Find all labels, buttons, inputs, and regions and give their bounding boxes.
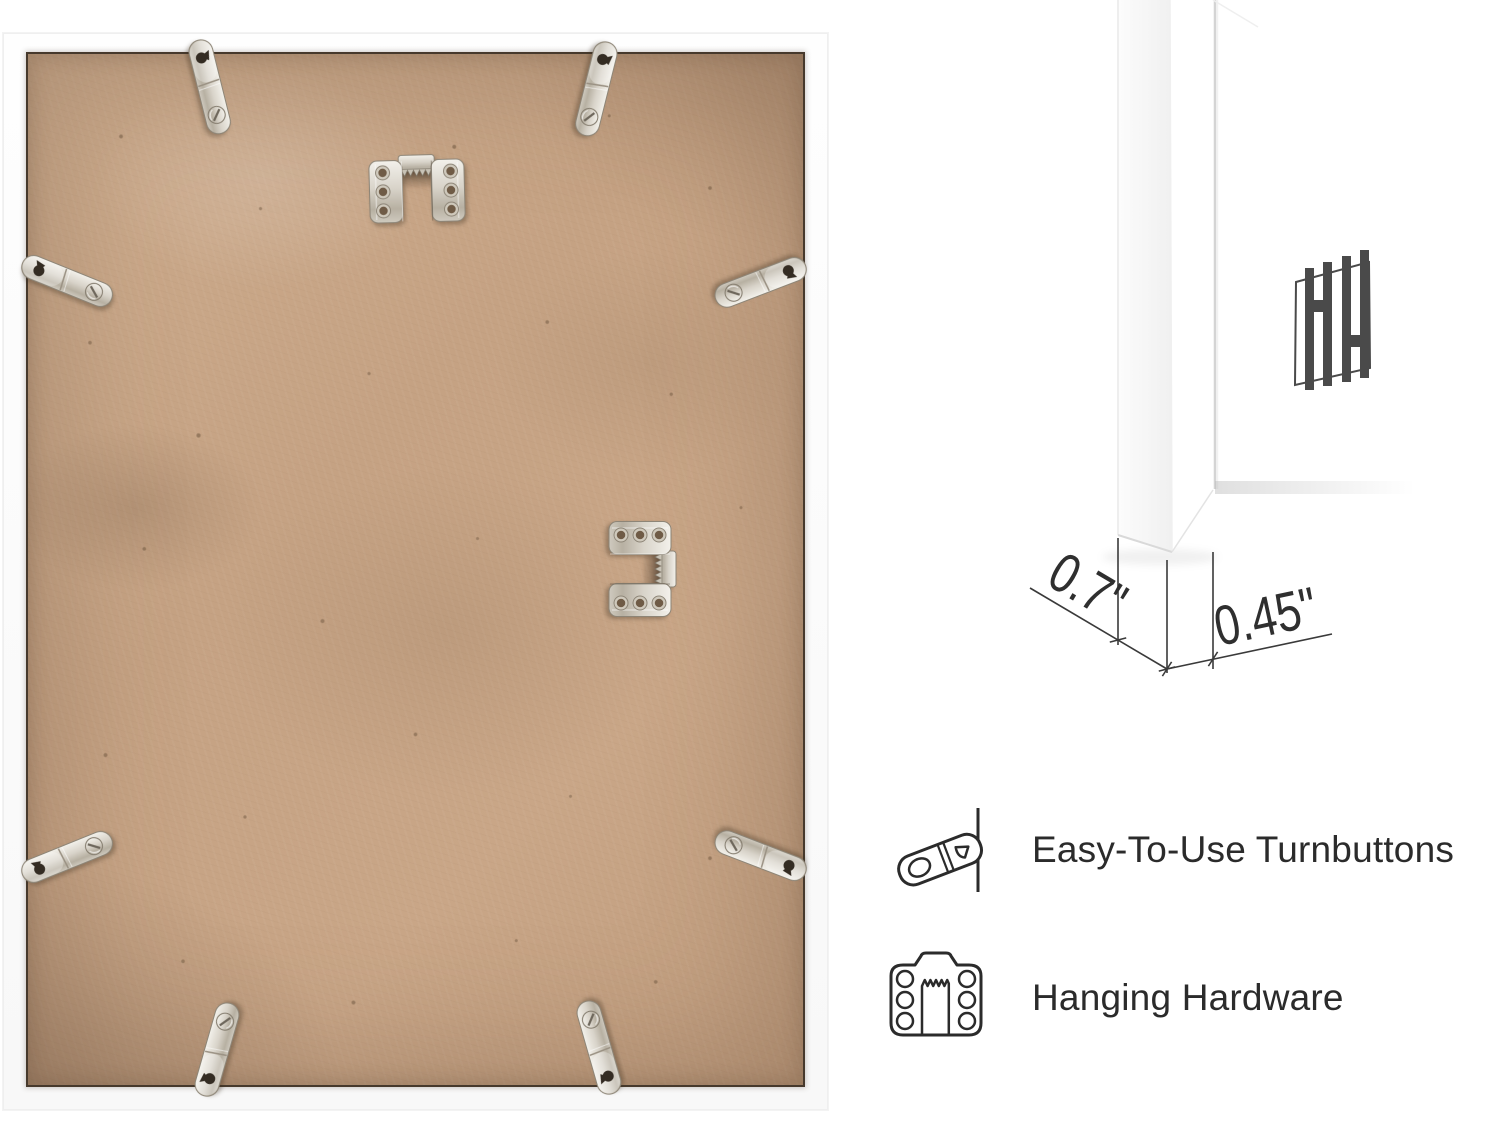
mat-bottom-shadow: [1215, 481, 1500, 494]
corner-shadow: [1102, 549, 1218, 565]
frame-side-face: [1118, 0, 1172, 552]
hardware-layer: [3, 33, 828, 1110]
turnbutton-bottom-left: [188, 997, 246, 1102]
turnbutton-top-right: [569, 36, 624, 141]
hanging-hardware-icon: [888, 950, 984, 1038]
top-rail-hint: [1213, 0, 1258, 27]
hh-monogram-logo: [1295, 250, 1370, 390]
turnbutton-bottom-right: [570, 995, 628, 1100]
turnbutton-top-left: [182, 34, 237, 139]
sawtooth-hanger-middle: [604, 521, 678, 617]
turnbutton-right-upper: [708, 249, 813, 315]
feature-label: Hanging Hardware: [1032, 975, 1344, 1021]
product-image: 0.7" 0.45" Easy-To-Use Turnbuttons Hangi…: [0, 0, 1500, 1135]
turnbutton-right-lower: [708, 823, 813, 889]
frame-back-photo: [3, 33, 828, 1110]
turnbutton-icon: [884, 804, 994, 896]
frame-corner-closeup: 0.7" 0.45": [1000, 0, 1500, 780]
sawtooth-hanger-top: [368, 152, 466, 228]
turnbutton-left-lower: [15, 823, 120, 890]
turnbutton-left-upper: [15, 247, 120, 314]
frame-front-face: [1170, 0, 1213, 552]
face-dimension-label: 0.45": [1208, 575, 1322, 658]
feature-label: Easy-To-Use Turnbuttons: [1032, 827, 1454, 873]
